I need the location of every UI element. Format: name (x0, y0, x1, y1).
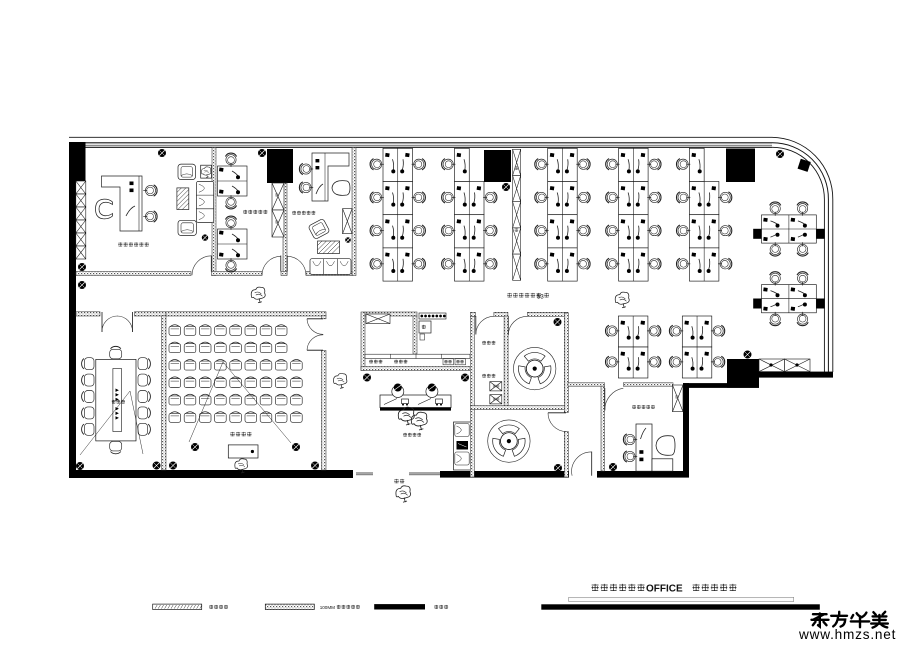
svg-text:OFFICE: OFFICE (646, 583, 683, 594)
svg-text:www.hmzs.net: www.hmzs.net (798, 627, 896, 642)
svg-text:53: 53 (537, 295, 544, 301)
svg-text:100MM: 100MM (320, 605, 335, 610)
